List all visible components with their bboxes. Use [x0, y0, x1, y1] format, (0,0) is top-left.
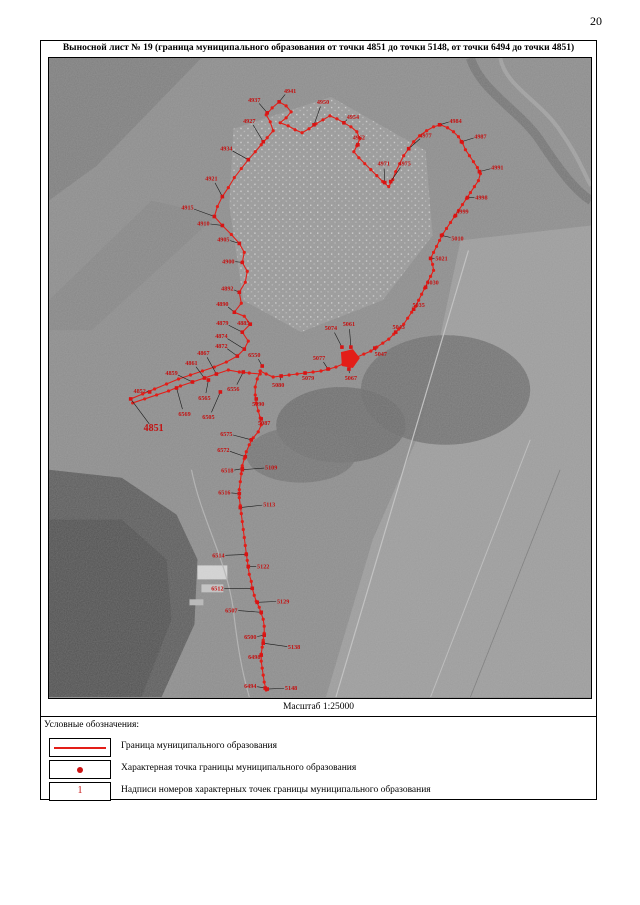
svg-text:5122: 5122	[257, 564, 269, 570]
svg-text:5061: 5061	[343, 322, 355, 328]
svg-text:5077: 5077	[313, 356, 325, 362]
document-page: 20 Выносной лист № 19 (граница муниципал…	[0, 0, 640, 905]
legend-item-label: Надписи номеров характерных точек границ…	[121, 785, 431, 795]
svg-text:5080: 5080	[272, 383, 284, 389]
svg-text:5138: 5138	[288, 645, 300, 651]
svg-text:5043: 5043	[393, 325, 405, 331]
svg-text:5109: 5109	[265, 466, 277, 472]
svg-text:4998: 4998	[475, 196, 487, 202]
svg-text:6569: 6569	[178, 412, 190, 418]
svg-text:4885: 4885	[237, 321, 249, 327]
svg-text:5074: 5074	[325, 326, 337, 332]
svg-text:4950: 4950	[317, 100, 329, 106]
svg-text:4910: 4910	[197, 221, 209, 227]
legend-item-label: Характерная точка границы муниципального…	[121, 763, 356, 773]
svg-text:4861: 4861	[185, 361, 197, 367]
legend-divider	[41, 716, 596, 717]
red-line-icon	[54, 747, 106, 749]
svg-text:4927: 4927	[243, 119, 255, 125]
svg-text:4867: 4867	[197, 351, 209, 357]
svg-text:5067: 5067	[345, 376, 357, 382]
svg-text:4852: 4852	[134, 389, 146, 395]
svg-text:4921: 4921	[205, 177, 217, 183]
svg-text:4987: 4987	[474, 135, 486, 141]
svg-text:4934: 4934	[220, 147, 232, 153]
svg-text:6512: 6512	[211, 586, 223, 592]
svg-text:6572: 6572	[217, 448, 229, 454]
boundary-point-symbol	[49, 760, 111, 779]
svg-text:4962: 4962	[353, 136, 365, 142]
svg-text:4971: 4971	[378, 162, 390, 168]
legend-row-point-number: 1 Надписи номеров характерных точек гран…	[49, 782, 589, 802]
svg-text:4900: 4900	[222, 259, 234, 265]
svg-text:4892: 4892	[221, 286, 233, 292]
svg-text:6550: 6550	[248, 353, 260, 359]
svg-text:4874: 4874	[215, 334, 227, 340]
svg-text:5090: 5090	[252, 402, 264, 408]
legend-heading: Условные обозначения:	[44, 720, 139, 730]
red-dot-icon	[77, 767, 83, 773]
svg-text:6516: 6516	[218, 491, 230, 497]
svg-text:6575: 6575	[220, 432, 232, 438]
svg-text:4890: 4890	[216, 302, 228, 308]
page-number: 20	[590, 14, 602, 29]
sheet-frame: Выносной лист № 19 (граница муниципально…	[40, 40, 597, 800]
svg-text:6518: 6518	[221, 469, 233, 475]
svg-text:5079: 5079	[302, 376, 314, 382]
map-area: 4851485248594861486748724874487948854890…	[48, 57, 592, 699]
legend-row-boundary-line: Граница муниципального образования	[49, 738, 589, 758]
svg-text:5021: 5021	[435, 256, 447, 262]
svg-text:6494: 6494	[244, 684, 256, 690]
legend-row-boundary-point: Характерная точка границы муниципального…	[49, 760, 589, 780]
svg-text:6556: 6556	[227, 387, 239, 393]
svg-text:6565: 6565	[198, 396, 210, 402]
svg-text:5047: 5047	[375, 352, 387, 358]
satellite-map: 4851485248594861486748724874487948854890…	[49, 58, 591, 698]
point-number-sample: 1	[50, 785, 110, 796]
svg-text:5113: 5113	[263, 503, 275, 509]
svg-text:4872: 4872	[215, 344, 227, 350]
svg-text:5035: 5035	[412, 303, 424, 309]
svg-text:4937: 4937	[248, 98, 260, 104]
svg-text:5148: 5148	[285, 686, 297, 692]
boundary-line-symbol	[49, 738, 111, 757]
svg-text:4975: 4975	[399, 162, 411, 168]
svg-text:4999: 4999	[456, 210, 468, 216]
svg-text:4915: 4915	[181, 206, 193, 212]
svg-text:4851: 4851	[144, 423, 164, 434]
svg-text:4859: 4859	[165, 371, 177, 377]
svg-text:5129: 5129	[277, 599, 289, 605]
sheet-title: Выносной лист № 19 (граница муниципально…	[41, 43, 596, 53]
svg-text:5087: 5087	[258, 421, 270, 427]
svg-text:6498: 6498	[248, 655, 260, 661]
svg-text:6500: 6500	[244, 635, 256, 641]
svg-text:4977: 4977	[419, 134, 431, 140]
svg-text:6514: 6514	[212, 553, 224, 559]
svg-text:4941: 4941	[284, 89, 296, 95]
svg-text:6507: 6507	[225, 608, 237, 614]
svg-text:4879: 4879	[216, 321, 228, 327]
svg-text:4954: 4954	[347, 115, 359, 121]
svg-text:4905: 4905	[217, 237, 229, 243]
svg-text:5010: 5010	[451, 236, 463, 242]
svg-text:4984: 4984	[449, 119, 461, 125]
svg-text:5030: 5030	[426, 280, 438, 286]
svg-text:4991: 4991	[491, 166, 503, 172]
point-number-symbol: 1	[49, 782, 111, 801]
scale-label: Масштаб 1:25000	[41, 702, 596, 712]
svg-text:6505: 6505	[202, 415, 214, 421]
legend-item-label: Граница муниципального образования	[121, 741, 277, 751]
